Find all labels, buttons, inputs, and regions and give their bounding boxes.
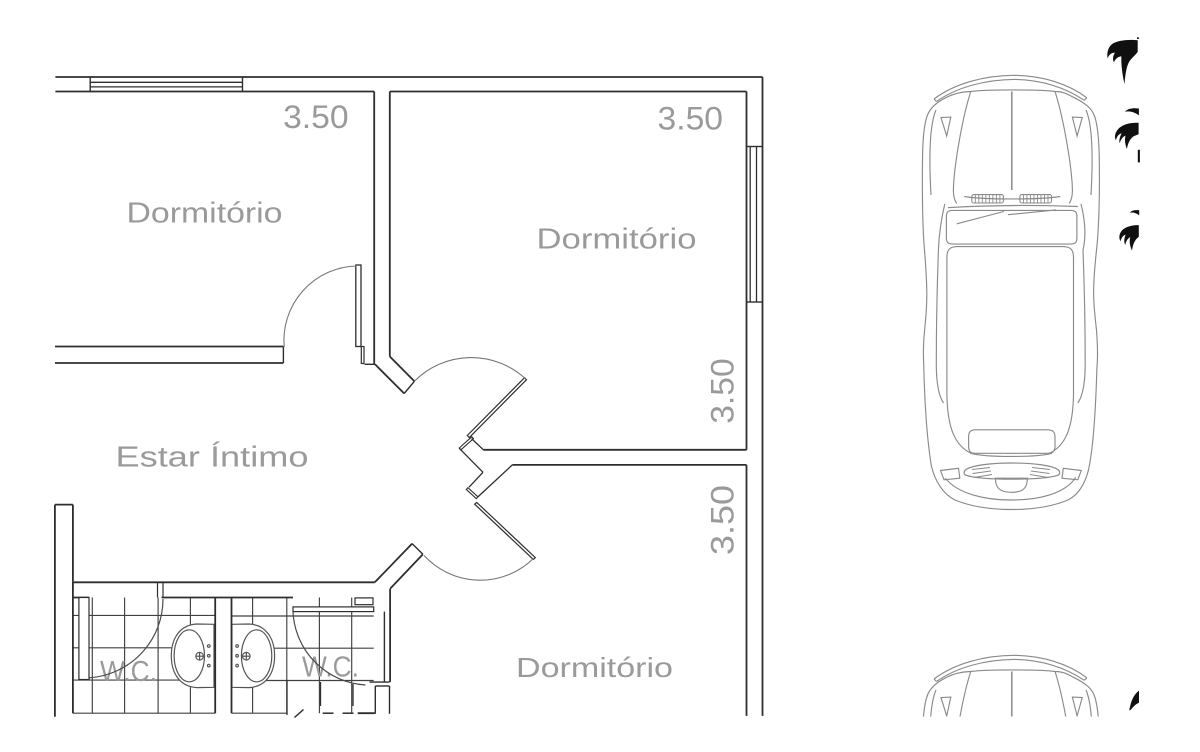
svg-text:W.C.: W.C. bbox=[100, 656, 157, 688]
svg-text:3.50: 3.50 bbox=[283, 99, 349, 135]
svg-text:Dormitório: Dormitório bbox=[537, 224, 697, 256]
svg-text:Dormitório: Dormitório bbox=[127, 198, 283, 230]
svg-text:3.50: 3.50 bbox=[658, 101, 724, 137]
svg-text:Estar Íntimo: Estar Íntimo bbox=[116, 441, 309, 474]
svg-text:Dormitório: Dormitório bbox=[516, 652, 673, 683]
svg-text:3.50: 3.50 bbox=[705, 358, 741, 424]
svg-text:3.50: 3.50 bbox=[705, 485, 741, 555]
